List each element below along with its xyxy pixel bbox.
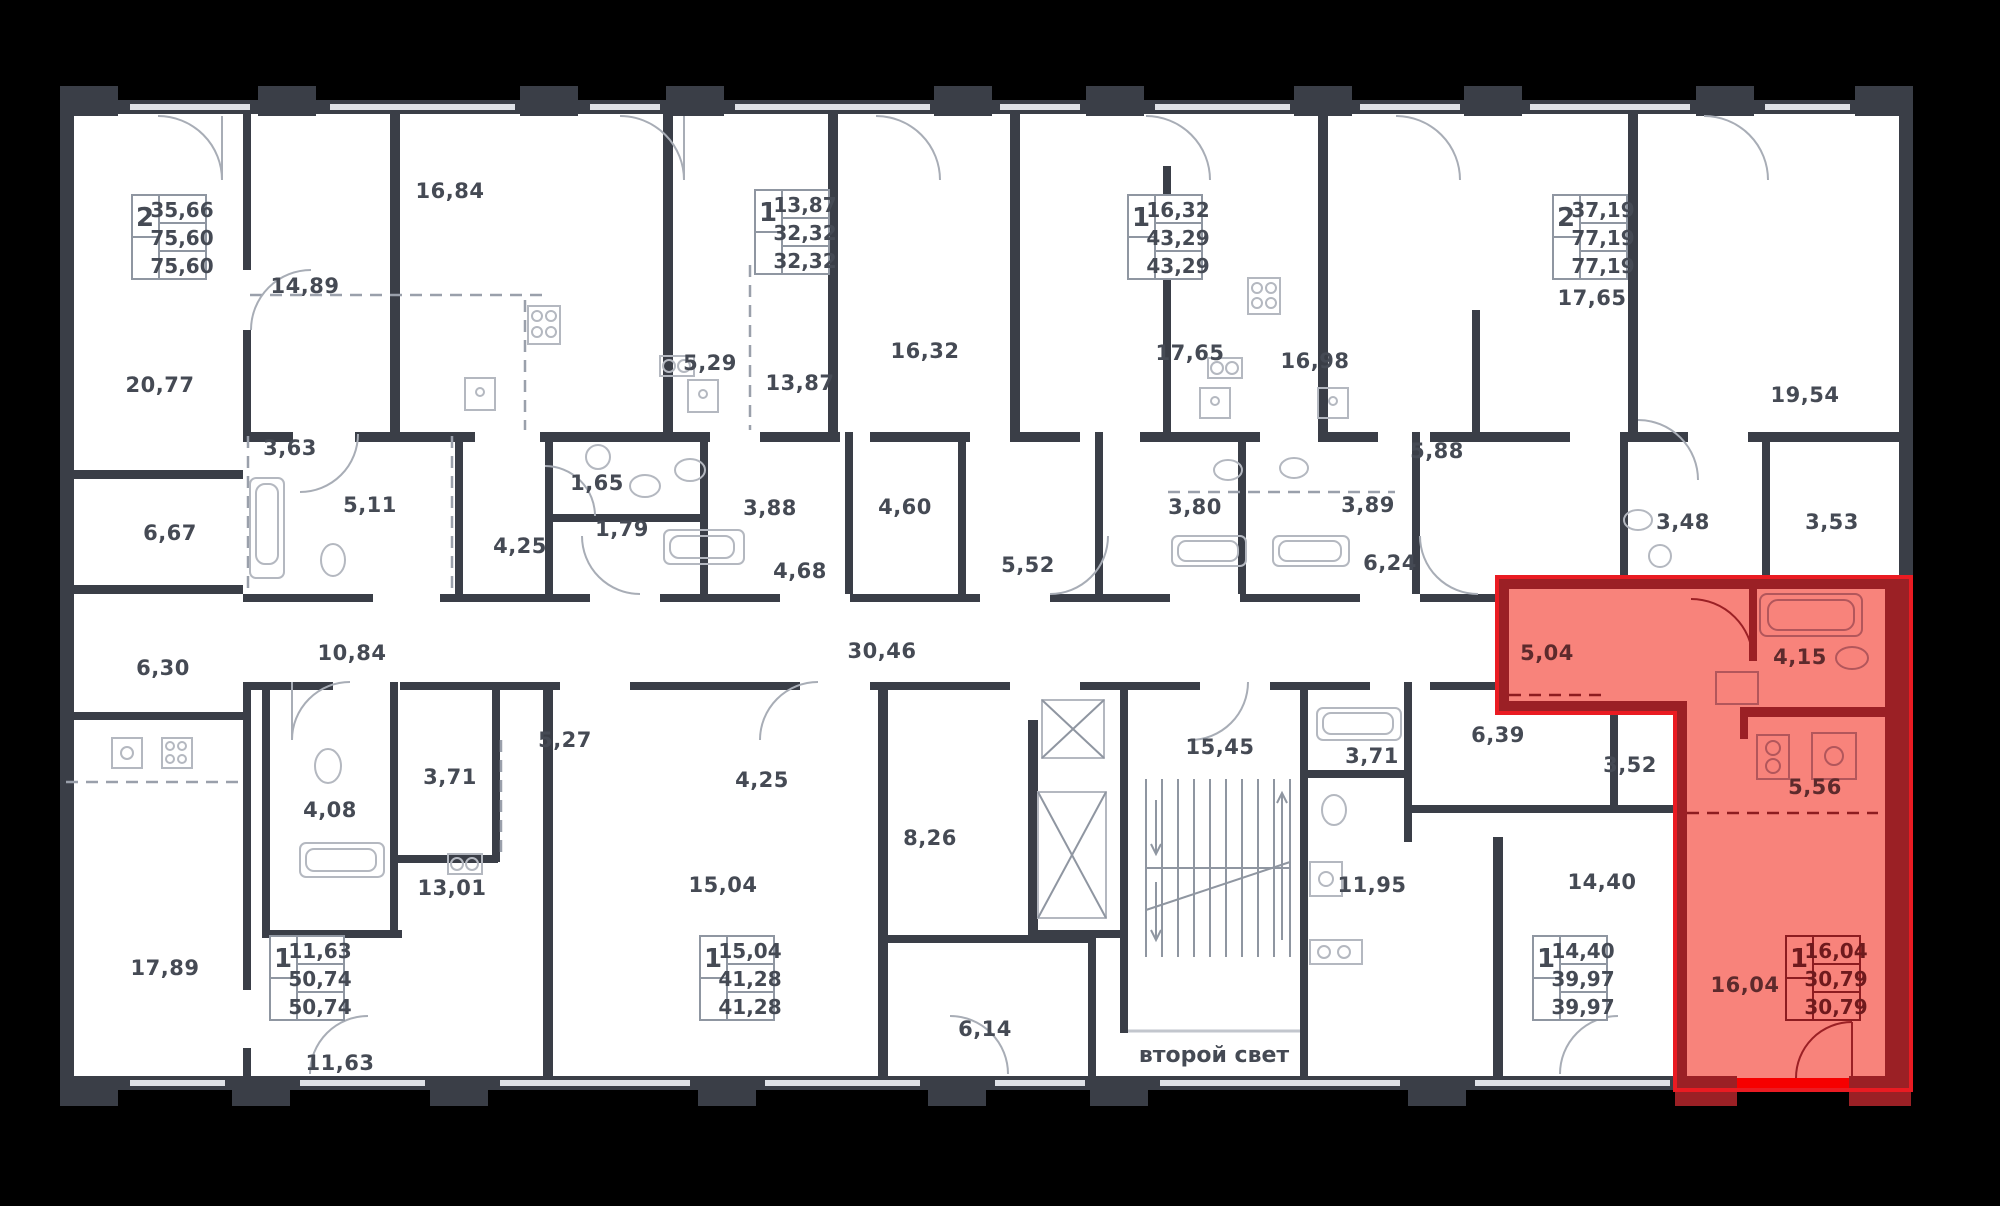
area: 32,32 (773, 221, 836, 245)
room-area-label: 11,95 (1338, 873, 1407, 897)
room-area-label: 5,27 (538, 728, 592, 752)
room-area-label: 8,26 (903, 826, 957, 850)
room-area-label: 10,84 (318, 641, 387, 665)
room-area-label: 6,30 (136, 656, 190, 680)
room-area-label: 4,60 (878, 495, 932, 519)
apartment-info-box: 1 11,63 50,74 50,74 (270, 936, 352, 1020)
living-area: 35,66 (150, 198, 213, 222)
room-area-label: 3,80 (1168, 495, 1222, 519)
room-area-label: 14,89 (271, 274, 340, 298)
apartment-info-box: 1 13,87 32,32 32,32 (755, 190, 837, 274)
room-area-label: 4,68 (773, 559, 827, 583)
total-area: 50,74 (288, 995, 351, 1019)
room-area-label: 5,88 (1410, 439, 1464, 463)
room-area-label: 1,79 (595, 517, 649, 541)
total-area: 32,32 (773, 249, 836, 273)
room-area-label: 3,71 (423, 765, 477, 789)
room-area-label: 3,52 (1603, 753, 1657, 777)
room-area-label: 3,89 (1341, 493, 1395, 517)
total-area: 75,60 (150, 254, 213, 278)
room-area-label: 5,04 (1520, 641, 1574, 665)
room-area-label: 3,48 (1656, 510, 1710, 534)
apartment-info-box: 1 14,40 39,97 39,97 (1533, 936, 1615, 1020)
room-area-label: 4,08 (303, 798, 357, 822)
room-area-label: 17,65 (1558, 286, 1627, 310)
living-area: 14,40 (1551, 939, 1614, 963)
room-area-label: 5,11 (343, 493, 397, 517)
area: 75,60 (150, 226, 213, 250)
room-area-label: 1,65 (570, 471, 624, 495)
apartment-info-box: 1 15,04 41,28 41,28 (700, 936, 782, 1020)
room-area-label: 15,04 (689, 873, 758, 897)
room-area-label: 6,24 (1363, 551, 1417, 575)
room-area-label: 5,29 (683, 351, 737, 375)
living-area: 16,04 (1804, 939, 1867, 963)
room-area-label: 19,54 (1771, 383, 1840, 407)
floor-plan-svg: 20,77 14,89 16,84 5,29 13,87 16,32 17,65… (0, 0, 2000, 1206)
apartment-info-box: 1 16,32 43,29 43,29 (1128, 195, 1210, 279)
room-area-label: 3,88 (743, 496, 797, 520)
room-area-label: 30,46 (848, 639, 917, 663)
room-area-label: 6,67 (143, 521, 197, 545)
total-area: 41,28 (718, 995, 781, 1019)
room-area-label: 13,87 (766, 371, 835, 395)
living-area: 37,19 (1571, 198, 1634, 222)
area: 77,19 (1571, 226, 1634, 250)
floor-plan-screenshot: 20,77 14,89 16,84 5,29 13,87 16,32 17,65… (0, 0, 2000, 1206)
total-area: 43,29 (1146, 254, 1209, 278)
room-area-label: 4,25 (735, 768, 789, 792)
area: 41,28 (718, 967, 781, 991)
room-area-label: 3,71 (1345, 744, 1399, 768)
apartment-info-box: 2 35,66 75,60 75,60 (132, 195, 214, 279)
living-area: 11,63 (288, 939, 351, 963)
room-area-label: 20,77 (126, 373, 195, 397)
area: 50,74 (288, 967, 351, 991)
total-area: 77,19 (1571, 254, 1634, 278)
room-area-label: 15,45 (1186, 735, 1255, 759)
room-area-label: 11,63 (306, 1051, 375, 1075)
second-light-label: второй свет (1139, 1043, 1290, 1068)
room-area-label: 16,32 (891, 339, 960, 363)
living-area: 16,32 (1146, 198, 1209, 222)
room-area-label: 3,53 (1805, 510, 1859, 534)
room-area-label: 4,15 (1773, 645, 1827, 669)
room-area-label: 17,89 (131, 956, 200, 980)
area: 43,29 (1146, 226, 1209, 250)
room-area-label: 16,98 (1281, 349, 1350, 373)
room-area-label: 13,01 (418, 876, 487, 900)
room-area-label: 16,84 (416, 179, 485, 203)
room-area-label: 6,39 (1471, 723, 1525, 747)
area: 39,97 (1551, 967, 1614, 991)
living-area: 13,87 (773, 193, 836, 217)
room-area-label: 17,65 (1156, 341, 1225, 365)
total-area: 39,97 (1551, 995, 1614, 1019)
total-area: 30,79 (1804, 995, 1867, 1019)
room-area-label: 14,40 (1568, 870, 1637, 894)
room-area-label: 6,14 (958, 1017, 1012, 1041)
living-area: 15,04 (718, 939, 781, 963)
apartment-info-box: 2 37,19 77,19 77,19 (1553, 195, 1635, 279)
room-area-label: 5,52 (1001, 553, 1055, 577)
area: 30,79 (1804, 967, 1867, 991)
room-area-label: 4,25 (493, 534, 547, 558)
room-area-label: 16,04 (1711, 973, 1780, 997)
room-area-label: 5,56 (1788, 775, 1842, 799)
room-area-label: 3,63 (263, 436, 317, 460)
